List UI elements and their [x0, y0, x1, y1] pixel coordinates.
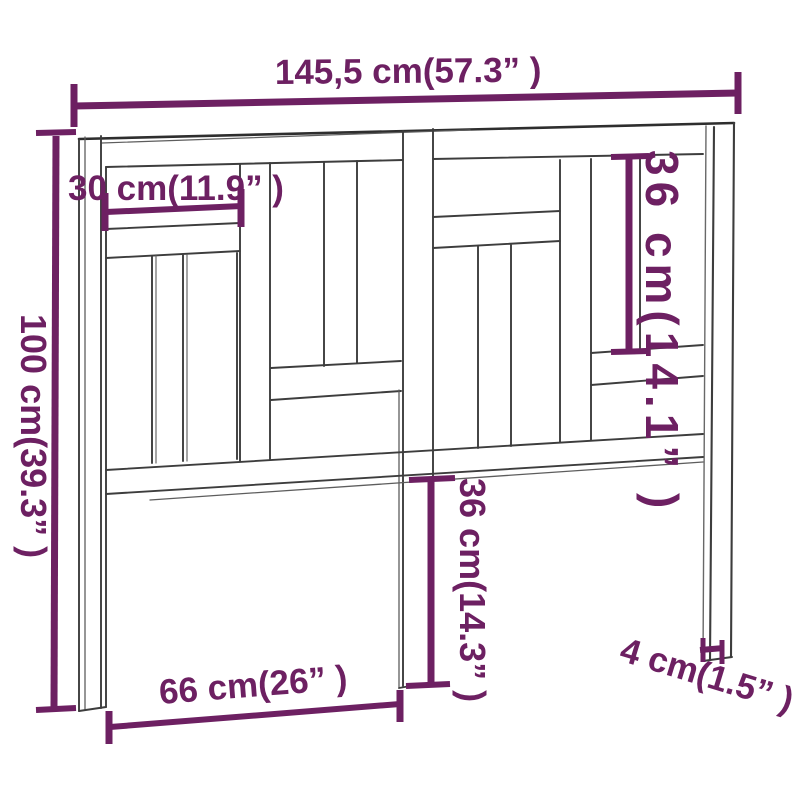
svg-text:30 cm(11.9” ): 30 cm(11.9” ): [68, 169, 284, 208]
svg-text:145,5 cm(57.3” ): 145,5 cm(57.3” ): [275, 51, 542, 92]
svg-text:36 cm(14.3” ): 36 cm(14.3” ): [452, 478, 493, 702]
svg-text:36 cm(14.1” ): 36 cm(14.1” ): [636, 150, 688, 514]
svg-text:100 cm(39.3” ): 100 cm(39.3” ): [13, 314, 54, 558]
